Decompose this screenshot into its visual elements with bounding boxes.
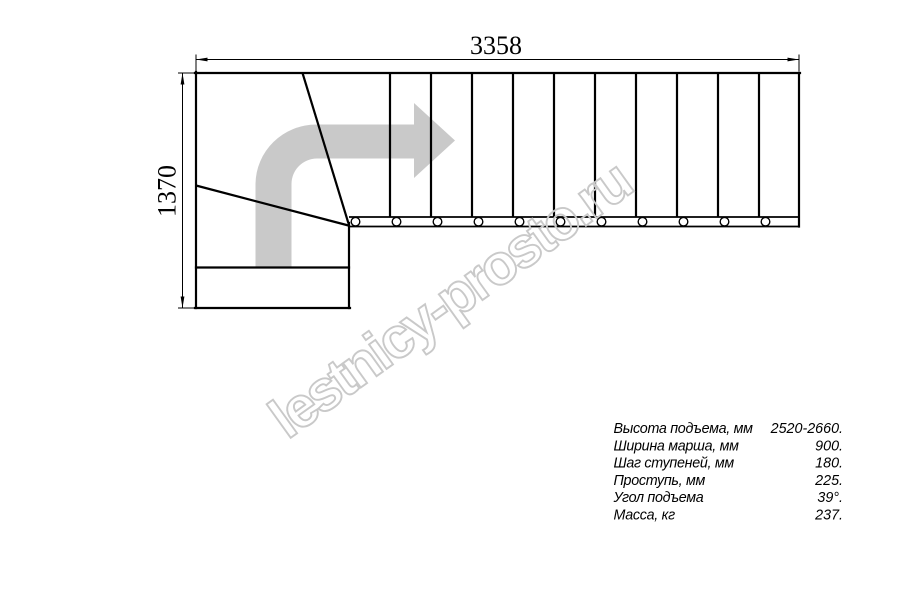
- svg-text:225.: 225.: [814, 473, 843, 489]
- svg-text:Высота подъема, мм: Высота подъема, мм: [614, 421, 754, 437]
- svg-text:39°.: 39°.: [817, 490, 843, 506]
- svg-text:2520-2660.: 2520-2660.: [770, 421, 843, 437]
- svg-text:Масса, кг: Масса, кг: [614, 508, 676, 524]
- svg-text:Угол подъема: Угол подъема: [613, 490, 704, 506]
- svg-text:Проступь, мм: Проступь, мм: [614, 473, 706, 489]
- svg-text:Ширина марша, мм: Ширина марша, мм: [614, 438, 740, 454]
- svg-text:3358: 3358: [470, 31, 522, 60]
- svg-text:237.: 237.: [814, 508, 843, 524]
- svg-text:lestnicy-prosto.ru: lestnicy-prosto.ru: [258, 149, 643, 450]
- svg-text:900.: 900.: [815, 438, 843, 454]
- svg-text:Шаг ступеней, мм: Шаг ступеней, мм: [614, 456, 735, 472]
- svg-text:180.: 180.: [815, 456, 843, 472]
- svg-text:1370: 1370: [153, 165, 182, 217]
